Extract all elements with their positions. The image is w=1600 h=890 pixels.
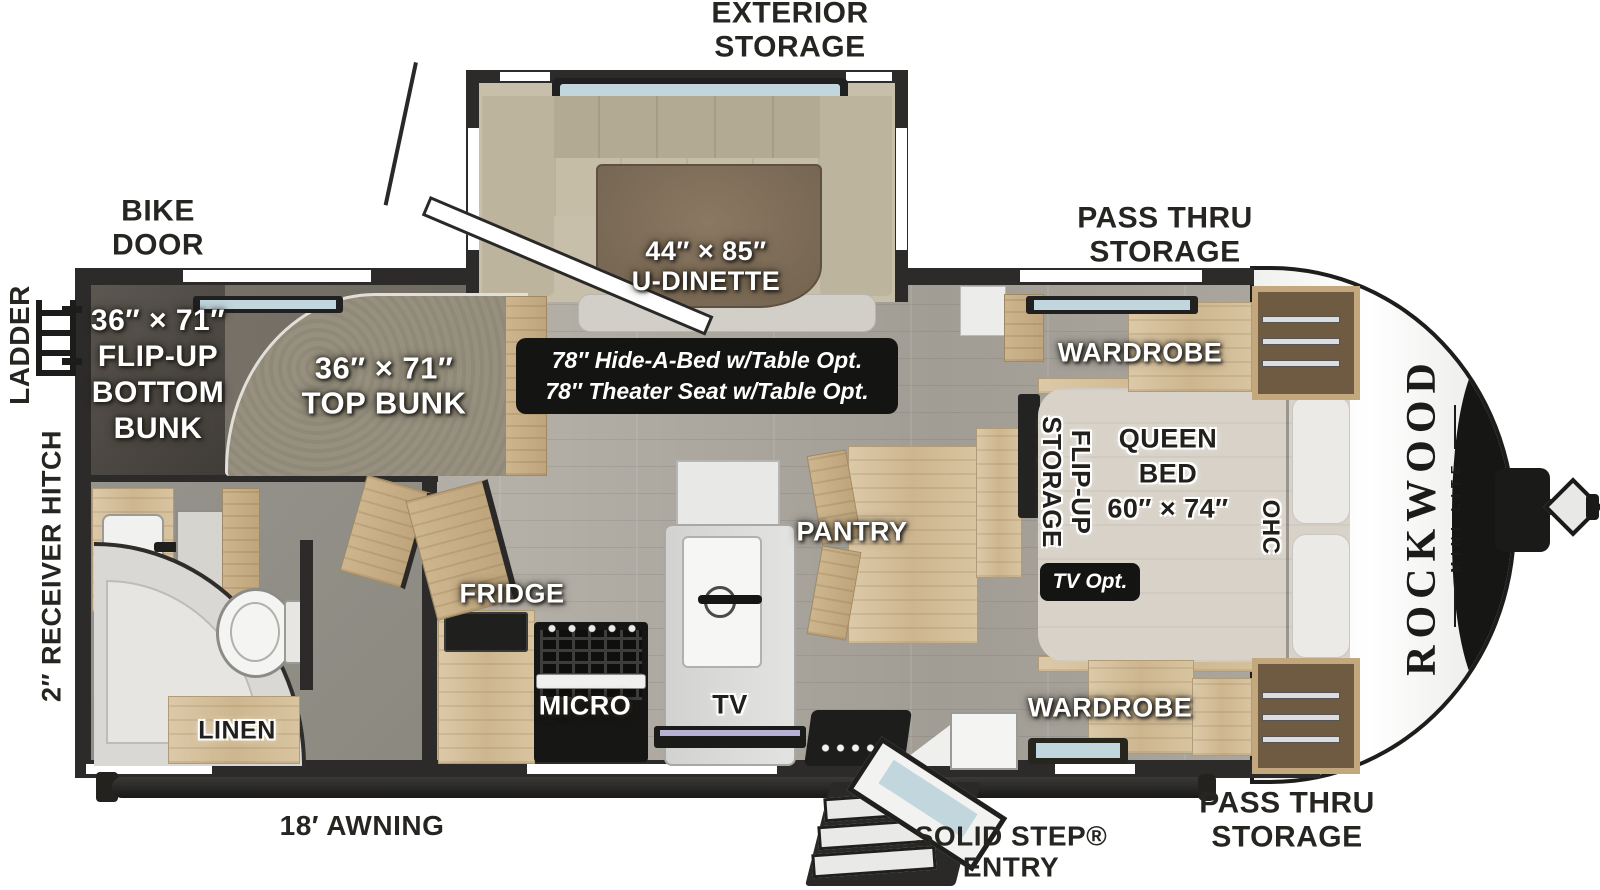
label-tv: TV <box>712 690 748 719</box>
dinette-sofa-right-arm <box>820 96 892 296</box>
label-fridge: FRIDGE <box>459 579 564 608</box>
bed-pillow-bottom <box>1292 534 1350 658</box>
label-receiver-hitch: 2″ RECEIVER HITCH <box>37 406 68 726</box>
bed-pillow-seam <box>1286 392 1289 658</box>
label-bike-door: BIKE DOOR <box>112 194 204 261</box>
bed-bench <box>1192 678 1252 756</box>
slide-end-block <box>960 286 1006 336</box>
brand-decal: ROCKWOOD MINI LITE <box>1393 301 1467 731</box>
label-ohc: OHC <box>1256 482 1284 572</box>
tv-screen-line <box>660 730 800 736</box>
cubby-bottom-rod-3 <box>1262 736 1340 743</box>
label-exterior-storage: EXTERIOR STORAGE <box>711 0 868 64</box>
decal-rule-left <box>1454 583 1456 627</box>
bath-stub-wall <box>300 540 313 690</box>
pantry-door-handle <box>698 595 762 604</box>
cubby-bottom-rod-1 <box>1262 692 1340 699</box>
label-solid-step-entry: SOLID STEP® ENTRY <box>915 821 1108 884</box>
toilet-seat <box>230 602 280 662</box>
tv-opt-badge: TV Opt. <box>1040 563 1140 601</box>
brand-name: ROCKWOOD <box>1398 356 1446 676</box>
hitch-knob <box>1586 494 1599 520</box>
label-linen: LINEN <box>198 718 276 745</box>
label-ladder: LADDER <box>4 235 36 455</box>
label-top-bunk: 36″ × 71″ TOP BUNK <box>302 351 467 420</box>
label-wardrobe-bottom: WARDROBE <box>1028 693 1193 722</box>
label-flip-up-bottom-bunk: 36″ × 71″ FLIP-UP BOTTOM BUNK <box>91 303 225 447</box>
bedroom-wall-window-slit <box>1020 270 1202 282</box>
label-awning: 18′ AWNING <box>280 811 445 841</box>
ladder-mount-bottom <box>62 358 82 365</box>
wall-rear-left <box>75 268 91 778</box>
cubby-top-rod-2 <box>1262 338 1340 345</box>
tv-opt-text: TV Opt. <box>1053 570 1128 594</box>
label-pantry: PANTRY <box>797 517 908 546</box>
slideout-storage-door-right <box>846 72 892 81</box>
bed-pillow-top <box>1292 396 1350 524</box>
entry-partition-wall <box>950 712 1018 770</box>
cubby-top-rod-1 <box>1262 316 1340 323</box>
slideout-window-right <box>896 128 907 250</box>
bath-faucet <box>154 542 178 552</box>
bottom-slit-bedroom <box>1055 764 1135 774</box>
bunk-wall-window-slit <box>183 270 371 282</box>
bedroom-top-window-glass <box>1034 300 1190 310</box>
label-queen-bed: QUEEN BED 60″ × 74″ <box>1107 421 1228 526</box>
ladder-mount-top <box>62 306 82 313</box>
brand-series-row: MINI LITE <box>1448 405 1463 626</box>
bike-door-strut <box>384 62 418 206</box>
stove-handle-bar <box>536 674 646 689</box>
label-wardrobe-top: WARDROBE <box>1058 338 1223 367</box>
bedroom-bottom-window-glass <box>1036 743 1120 758</box>
awning-tube <box>112 777 1207 798</box>
label-micro: MICRO <box>539 691 632 720</box>
pantry-cabinet-top <box>676 460 780 532</box>
cubby-bottom-rod-2 <box>1262 714 1340 721</box>
label-flip-up-storage: FLIP-UP STORAGE <box>1037 387 1095 577</box>
options-badge: 78″ Hide-A-Bed w/Table Opt. 78″ Theater … <box>516 338 898 414</box>
brand-series: MINI LITE <box>1448 459 1463 572</box>
decal-rule-right <box>1454 405 1456 449</box>
label-u-dinette: 44″ × 85″ U-DINETTE <box>632 236 781 296</box>
cap-rivet-top <box>1417 292 1425 300</box>
cubby-top-rod-3 <box>1262 360 1340 367</box>
slideout-storage-door-left <box>500 72 550 81</box>
stove-burner-caps <box>542 624 640 633</box>
rv-floorplan-diagram: ROCKWOOD MINI LITE <box>0 0 1600 890</box>
cap-rivet-bottom <box>1417 748 1425 756</box>
fridge-top <box>444 612 528 652</box>
label-pass-thru-storage-bottom: PASS THRU STORAGE <box>1199 786 1375 853</box>
label-pass-thru-storage-top: PASS THRU STORAGE <box>1077 201 1253 268</box>
bedroom-dresser <box>976 428 1022 578</box>
tongue-jack <box>1495 468 1550 552</box>
bath-side-cabinet <box>222 488 260 602</box>
